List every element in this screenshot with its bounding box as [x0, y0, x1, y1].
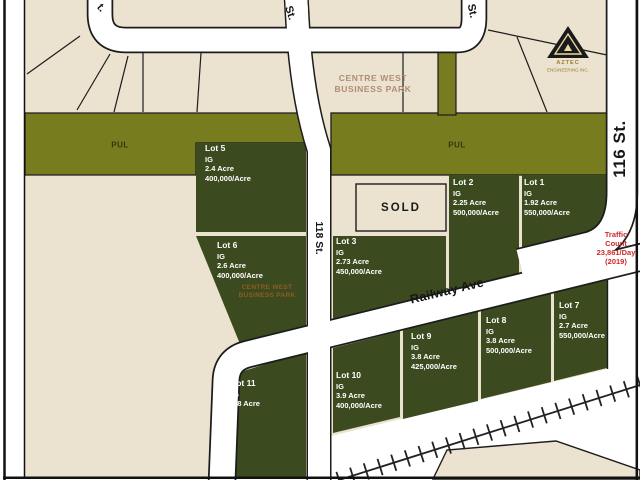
street-label-116-st: 116 St.: [610, 120, 630, 177]
lot-7-area: 2.7 Acre: [559, 321, 605, 331]
lot-10-name: Lot 10: [336, 371, 382, 381]
lot-11-area: 3.8 Acre: [231, 399, 260, 409]
lot-8-price: 500,000/Acre: [486, 346, 532, 356]
aztec-logo-subtitle: ENGINEERING INC.: [547, 68, 589, 73]
lot-1-price: 550,000/Acre: [524, 208, 570, 218]
lot-6-label: Lot 6 IG 2.6 Acre 400,000/Acre: [217, 241, 263, 280]
lot-6-name: Lot 6: [217, 241, 263, 251]
lot-6-price: 400,000/Acre: [217, 271, 263, 281]
lot-6-area: 2.6 Acre: [217, 261, 263, 271]
lot-2-zoning: IG: [453, 189, 499, 199]
lot-9-area: 3.8 Acre: [411, 352, 457, 362]
lot-9-name: Lot 9: [411, 332, 457, 342]
sold-label: SOLD: [381, 202, 421, 214]
pul-strip-right: [331, 113, 608, 175]
lot-7-label: Lot 7 IG 2.7 Acre 550,000/Acre: [559, 301, 605, 340]
lot-3-price: 450,000/Acre: [336, 267, 382, 277]
lot-3-name: Lot 3: [336, 237, 382, 247]
lot-8-zoning: IG: [486, 327, 532, 337]
lot-6-zoning: IG: [217, 252, 263, 262]
lot-7-name: Lot 7: [559, 301, 605, 311]
lot-1-label: Lot 1 IG 1.92 Acre 550,000/Acre: [524, 178, 570, 217]
lot-10-zoning: IG: [336, 382, 382, 392]
lot-1-area: 1.92 Acre: [524, 198, 570, 208]
pul-label-left: PUL: [111, 141, 129, 150]
lot-3-area: 2.73 Acre: [336, 257, 382, 267]
lot-10-area: 3.9 Acre: [336, 391, 382, 401]
pul-label-right: PUL: [448, 141, 466, 150]
lot-2-name: Lot 2: [453, 178, 499, 188]
lot-11-label: Lot 11 IG 3.8 Acre: [231, 379, 260, 409]
lot-2-price: 500,000/Acre: [453, 208, 499, 218]
lot-11-zoning: IG: [231, 390, 260, 400]
lot-11-shape: [236, 352, 306, 477]
lot-5-area: 2.4 Acre: [205, 164, 251, 174]
lot-5-price: 400,000/Acre: [205, 174, 251, 184]
lot-3-label: Lot 3 IG 2.73 Acre 450,000/Acre: [336, 237, 382, 276]
lot-7-price: 550,000/Acre: [559, 331, 605, 341]
lot-10-price: 400,000/Acre: [336, 401, 382, 411]
lot-2-label: Lot 2 IG 2.25 Acre 500,000/Acre: [453, 178, 499, 217]
lot-1-name: Lot 1: [524, 178, 570, 188]
pul-connector: [438, 50, 456, 115]
lot-1-zoning: IG: [524, 189, 570, 199]
street-label-top-right: St.: [465, 3, 480, 19]
traffic-count-note: Traffic Count 23,861/Day (2019): [597, 230, 636, 266]
lot-9-zoning: IG: [411, 343, 457, 353]
lot-8-name: Lot 8: [486, 316, 532, 326]
site-plan-map: t. St. St. 118 St. 116 St. Railway Ave P…: [0, 0, 640, 480]
street-label-118-st: 118 St.: [313, 221, 325, 254]
lot-11-name: Lot 11: [231, 379, 260, 389]
lot-9-price: 425,000/Acre: [411, 362, 457, 372]
lot-7-zoning: IG: [559, 312, 605, 322]
lot6-park-title: CENTRE WEST BUSINESS PARK: [239, 284, 296, 300]
lot-8-area: 3.8 Acre: [486, 336, 532, 346]
traffic-line2: Count: [597, 239, 636, 248]
lot-5-name: Lot 5: [205, 144, 251, 154]
lot-5-label: Lot 5 IG 2.4 Acre 400,000/Acre: [205, 144, 251, 183]
lot6-park-title-line1: CENTRE WEST: [239, 284, 296, 292]
lot-3-zoning: IG: [336, 248, 382, 258]
traffic-line1: Traffic: [597, 230, 636, 239]
business-park-title-line2: BUSINESS PARK: [334, 84, 411, 95]
aztec-logo-name: AZTEC: [556, 60, 579, 66]
traffic-line3: 23,861/Day: [597, 248, 636, 257]
traffic-line4: (2019): [597, 257, 636, 266]
lot-9-label: Lot 9 IG 3.8 Acre 425,000/Acre: [411, 332, 457, 371]
business-park-title: CENTRE WEST BUSINESS PARK: [334, 73, 411, 95]
lot-2-area: 2.25 Acre: [453, 198, 499, 208]
lot-5-zoning: IG: [205, 155, 251, 165]
lot6-park-title-line2: BUSINESS PARK: [239, 292, 296, 300]
business-park-title-line1: CENTRE WEST: [334, 73, 411, 84]
lot-10-label: Lot 10 IG 3.9 Acre 400,000/Acre: [336, 371, 382, 410]
lot-8-label: Lot 8 IG 3.8 Acre 500,000/Acre: [486, 316, 532, 355]
